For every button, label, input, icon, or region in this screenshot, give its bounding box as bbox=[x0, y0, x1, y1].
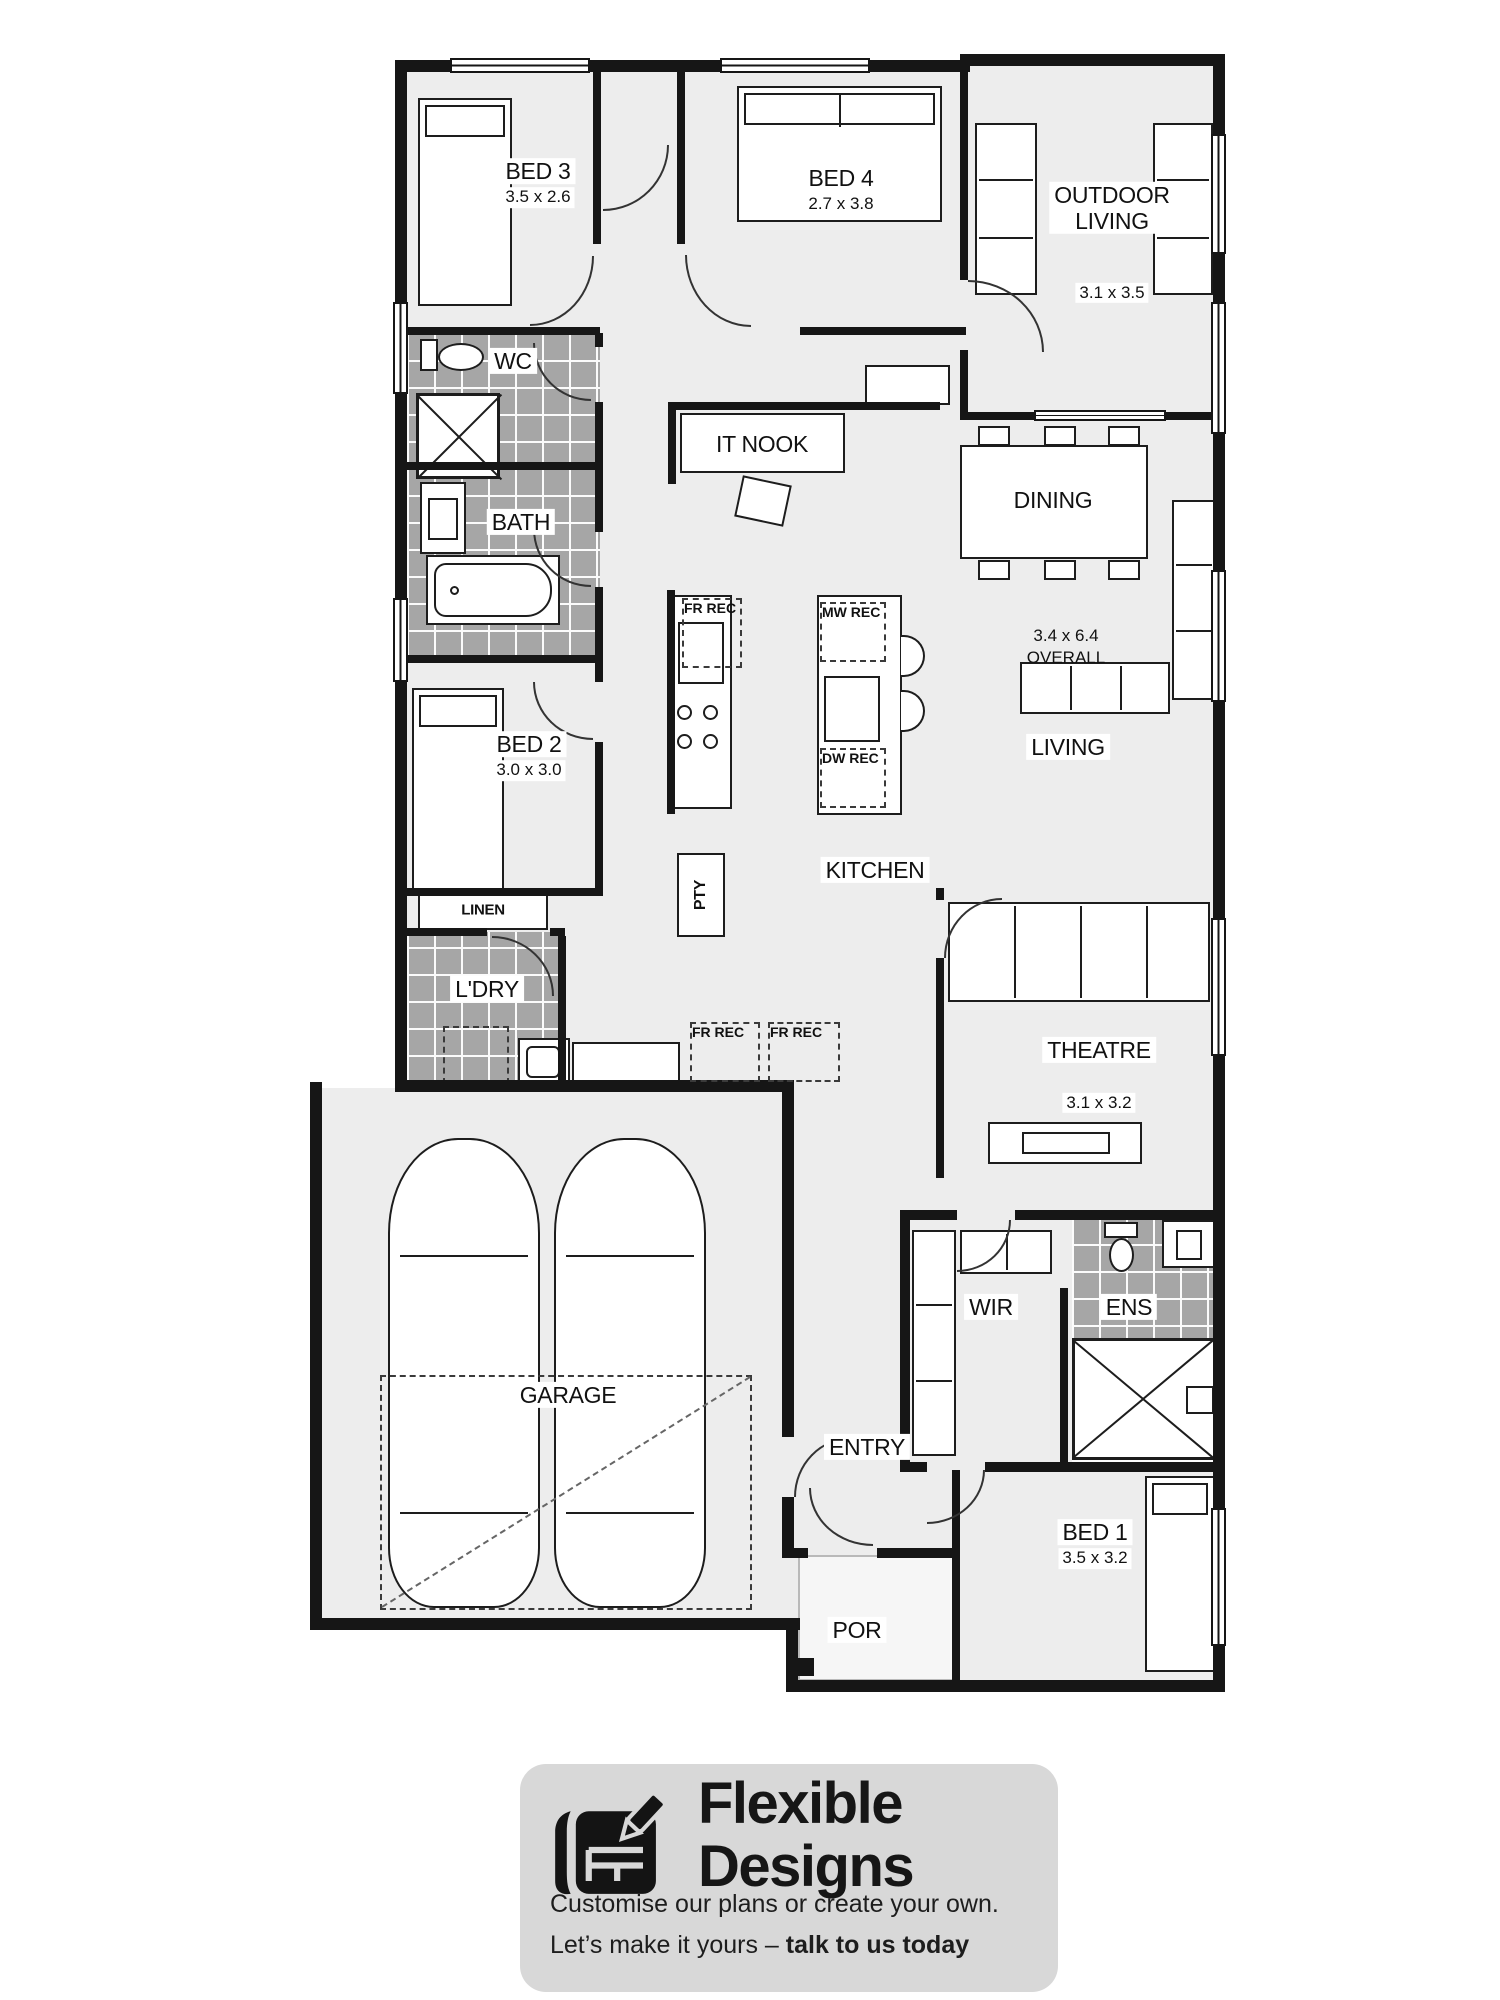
brand-banner: Flexible Designs Customise our plans or … bbox=[520, 1764, 1058, 1992]
microwave-recess-label: MW REC bbox=[822, 604, 880, 620]
window bbox=[393, 302, 408, 394]
dining-chair bbox=[978, 560, 1010, 580]
seat-line bbox=[979, 237, 1033, 239]
window bbox=[1211, 134, 1226, 254]
toilet-bowl bbox=[1109, 1238, 1134, 1272]
room-label-bath: BATH bbox=[487, 509, 555, 535]
room-label-it-nook: IT NOOK bbox=[711, 431, 813, 457]
wall bbox=[1015, 1210, 1218, 1220]
pillow-divider bbox=[839, 93, 841, 127]
wall bbox=[800, 327, 966, 335]
fridge-recess-label: FR REC bbox=[770, 1024, 822, 1040]
wall bbox=[595, 333, 603, 347]
island-sink bbox=[824, 676, 880, 742]
windshield-line bbox=[400, 1255, 528, 1257]
wardrobe-shelf bbox=[912, 1230, 956, 1456]
tv-unit bbox=[988, 1122, 1142, 1164]
windshield-line bbox=[566, 1255, 694, 1257]
wall bbox=[782, 1548, 808, 1558]
window bbox=[1211, 570, 1226, 702]
wall bbox=[400, 928, 487, 936]
wall bbox=[668, 402, 676, 484]
living-cabinet bbox=[1020, 662, 1170, 714]
seat-line bbox=[1080, 906, 1082, 998]
wall bbox=[1213, 54, 1225, 1692]
window bbox=[1211, 1508, 1226, 1646]
wall bbox=[595, 587, 603, 663]
room-label-linen: LINEN bbox=[458, 901, 508, 918]
seat-line bbox=[1157, 237, 1209, 239]
room-label-pantry: PTY bbox=[692, 875, 710, 915]
seat-line bbox=[979, 179, 1033, 181]
room-label-dining: DINING bbox=[1009, 487, 1098, 513]
wall bbox=[960, 54, 1225, 66]
room-label-bed1: BED 13.5 x 3.2 bbox=[1058, 1519, 1133, 1569]
dining-chair bbox=[1044, 426, 1076, 446]
wall bbox=[782, 1080, 794, 1437]
window-seat bbox=[865, 365, 950, 405]
divider bbox=[1120, 666, 1122, 710]
room-dim-living-overall: 3.4 x 6.4 OVERALL bbox=[1027, 625, 1105, 669]
wall bbox=[400, 327, 600, 335]
room-label-outdoor-living: OUTDOOR LIVING bbox=[1049, 182, 1174, 234]
shelf-line bbox=[916, 1304, 952, 1306]
wall bbox=[400, 888, 603, 896]
room-label-garage: GARAGE bbox=[515, 1382, 622, 1408]
wall bbox=[936, 958, 944, 1178]
microwave-recess: MW REC bbox=[820, 602, 886, 662]
wall bbox=[595, 663, 603, 682]
seat-line bbox=[1146, 906, 1148, 998]
fridge-recess-label: FR REC bbox=[692, 1024, 744, 1040]
wall bbox=[400, 462, 597, 470]
drain bbox=[450, 586, 459, 595]
wall bbox=[1060, 1288, 1068, 1468]
room-label-kitchen: KITCHEN bbox=[821, 857, 930, 883]
wall bbox=[900, 1462, 927, 1472]
toilet-bowl bbox=[438, 343, 484, 371]
wall bbox=[960, 412, 1034, 420]
wall bbox=[900, 1210, 910, 1470]
dining-chair bbox=[978, 426, 1010, 446]
bath-vanity bbox=[420, 482, 466, 554]
cooktop-burner bbox=[677, 734, 692, 749]
toilet-tank bbox=[1104, 1222, 1138, 1238]
room-dim-theatre: 3.1 x 3.2 bbox=[1062, 1093, 1135, 1113]
pillow bbox=[419, 695, 497, 727]
wall bbox=[786, 1680, 1225, 1692]
window bbox=[393, 598, 408, 682]
wall bbox=[595, 742, 603, 895]
toilet-tank bbox=[420, 339, 438, 371]
wall bbox=[667, 590, 675, 814]
shower-head bbox=[1186, 1386, 1214, 1414]
room-dim-outdoor-living: 3.1 x 3.5 bbox=[1075, 283, 1148, 303]
outdoor-sofa bbox=[975, 123, 1037, 295]
wall bbox=[550, 928, 565, 936]
living-sofa bbox=[1172, 500, 1216, 700]
fridge-recess: FR REC bbox=[682, 598, 742, 668]
room-label-wc: WC bbox=[489, 348, 537, 374]
cooktop-burner bbox=[677, 705, 692, 720]
brand-name-line1: Flexible bbox=[698, 1772, 913, 1835]
window bbox=[1211, 918, 1226, 1056]
room-label-wir: WIR bbox=[964, 1294, 1018, 1320]
tagline-line2-prefix: Let’s make it yours – bbox=[550, 1931, 786, 1959]
porch-post bbox=[796, 1658, 814, 1676]
bed bbox=[1145, 1476, 1215, 1672]
dining-chair bbox=[1108, 426, 1140, 446]
window bbox=[1211, 302, 1226, 434]
wall bbox=[960, 350, 968, 420]
shelf-line bbox=[916, 1380, 952, 1382]
wall bbox=[558, 936, 566, 1088]
wall bbox=[310, 1082, 322, 1630]
room-label-entry: ENTRY bbox=[824, 1434, 910, 1460]
wall bbox=[400, 655, 603, 663]
brand-tagline: Customise our plans or create your own. … bbox=[550, 1884, 999, 1966]
cooktop-burner bbox=[703, 705, 718, 720]
seat-line bbox=[1014, 906, 1016, 998]
room-label-bed3: BED 33.5 x 2.6 bbox=[501, 158, 576, 208]
tv bbox=[1022, 1132, 1110, 1154]
wall bbox=[668, 402, 940, 410]
pillow bbox=[425, 105, 505, 137]
room-label-laundry: L'DRY bbox=[450, 976, 524, 1002]
room-label-ensuite: ENS bbox=[1101, 1294, 1157, 1320]
wall bbox=[593, 72, 601, 244]
seat-line bbox=[1176, 564, 1212, 566]
bed bbox=[412, 688, 504, 893]
wall bbox=[310, 1618, 800, 1630]
pillow bbox=[1152, 1483, 1208, 1515]
dishwasher-recess: DW REC bbox=[820, 748, 886, 808]
room-label-bed4: BED 42.7 x 3.8 bbox=[804, 165, 879, 215]
wall bbox=[960, 62, 968, 280]
wall bbox=[936, 888, 944, 900]
cooktop-burner bbox=[703, 734, 718, 749]
bed bbox=[418, 98, 512, 306]
fridge-recess-label: FR REC bbox=[684, 600, 736, 616]
wall bbox=[985, 1462, 1218, 1472]
floor-plan: FR REC MW REC DW REC FR REC FR REC bbox=[300, 50, 1230, 1700]
room-label-porch: POR bbox=[828, 1617, 887, 1643]
fridge-recess: FR REC bbox=[768, 1022, 840, 1082]
room-label-living: LIVING bbox=[1026, 734, 1110, 760]
room-label-bed2: BED 23.0 x 3.0 bbox=[492, 731, 567, 781]
tagline-line2-bold: talk to us today bbox=[786, 1931, 969, 1959]
fridge-recess: FR REC bbox=[690, 1022, 760, 1082]
ensuite-vanity bbox=[1162, 1220, 1216, 1268]
tagline-line1: Customise our plans or create your own. bbox=[550, 1884, 999, 1925]
seat-line bbox=[1157, 179, 1209, 181]
divider bbox=[1070, 666, 1072, 710]
window bbox=[1034, 410, 1166, 421]
dishwasher-recess-label: DW REC bbox=[822, 750, 879, 766]
room-label-theatre: THEATRE bbox=[1042, 1037, 1156, 1063]
wall bbox=[677, 72, 685, 244]
laundry-basin bbox=[526, 1046, 560, 1078]
basin bbox=[1176, 1230, 1202, 1260]
tagline-line2: Let’s make it yours – talk to us today bbox=[550, 1925, 999, 1966]
wall bbox=[877, 1548, 960, 1558]
dining-chair bbox=[1108, 560, 1140, 580]
bathtub bbox=[426, 555, 560, 625]
window bbox=[720, 58, 870, 73]
basin bbox=[428, 498, 458, 540]
dining-chair bbox=[1044, 560, 1076, 580]
page: FR REC MW REC DW REC FR REC FR REC bbox=[0, 0, 1500, 2000]
brand-name: Flexible Designs bbox=[698, 1772, 913, 1898]
washer-recess bbox=[443, 1026, 509, 1084]
window bbox=[450, 58, 590, 73]
seat-line bbox=[1176, 630, 1212, 632]
